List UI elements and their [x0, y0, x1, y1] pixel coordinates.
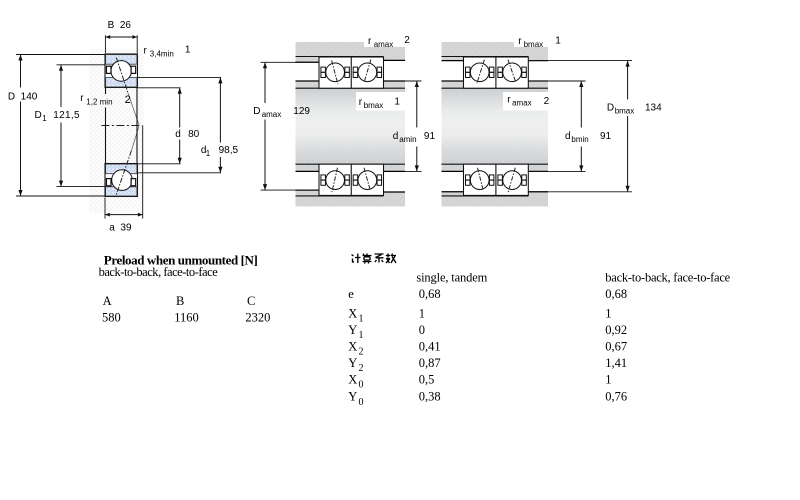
svg-text:2: 2: [404, 35, 410, 46]
svg-text:amax: amax: [262, 110, 282, 119]
svg-text:bmax: bmax: [615, 107, 635, 116]
svg-text:0,76: 0,76: [605, 390, 627, 404]
svg-text:C: C: [247, 294, 255, 308]
svg-text:80: 80: [188, 129, 200, 140]
svg-text:0,5: 0,5: [419, 372, 435, 386]
svg-text:91: 91: [600, 131, 612, 142]
svg-text:0: 0: [359, 380, 364, 391]
svg-text:134: 134: [645, 103, 662, 114]
svg-text:D: D: [35, 110, 42, 121]
svg-text:bmax: bmax: [524, 40, 544, 49]
svg-text:121,5: 121,5: [53, 110, 80, 121]
svg-text:bmin: bmin: [571, 135, 588, 144]
svg-text:0,92: 0,92: [605, 323, 627, 337]
svg-text:bmax: bmax: [364, 101, 384, 110]
svg-text:amin: amin: [399, 135, 416, 144]
svg-text:1160: 1160: [174, 311, 199, 325]
svg-text:2: 2: [125, 94, 131, 106]
svg-text:e: e: [348, 287, 354, 301]
svg-text:1: 1: [605, 372, 611, 386]
svg-text:0,68: 0,68: [605, 287, 627, 301]
svg-text:d: d: [175, 129, 181, 140]
svg-text:B 26: B 26: [108, 20, 132, 31]
svg-text:129: 129: [293, 106, 310, 117]
svg-text:back-to-back, face-to-face: back-to-back, face-to-face: [99, 265, 219, 279]
svg-text:98,5: 98,5: [219, 145, 239, 156]
svg-text:X: X: [348, 306, 357, 320]
svg-text:1: 1: [419, 306, 425, 320]
svg-text:0,87: 0,87: [419, 356, 441, 370]
svg-text:1,41: 1,41: [605, 356, 627, 370]
svg-text:0: 0: [419, 323, 425, 337]
svg-text:2: 2: [359, 363, 364, 374]
svg-text:Y: Y: [348, 356, 357, 370]
svg-text:d: d: [565, 131, 571, 142]
svg-text:1: 1: [359, 330, 364, 341]
svg-text:3,4min: 3,4min: [150, 49, 174, 58]
svg-text:X: X: [348, 372, 357, 386]
svg-text:0,41: 0,41: [419, 339, 441, 353]
svg-text:1: 1: [555, 36, 561, 47]
svg-text:D: D: [253, 106, 260, 117]
svg-text:single, tandem: single, tandem: [416, 271, 487, 285]
svg-text:a 39: a 39: [109, 223, 132, 234]
svg-text:1: 1: [359, 314, 364, 325]
svg-text:0,38: 0,38: [419, 390, 441, 404]
svg-text:back-to-back, face-to-face: back-to-back, face-to-face: [605, 271, 730, 285]
svg-text:0: 0: [359, 397, 364, 408]
svg-text:A: A: [103, 294, 112, 308]
svg-text:2: 2: [544, 96, 550, 107]
svg-text:1: 1: [605, 306, 611, 320]
svg-text:0,67: 0,67: [605, 339, 627, 353]
svg-text:1: 1: [206, 149, 211, 158]
svg-text:0,68: 0,68: [419, 287, 441, 301]
svg-text:1,2 min: 1,2 min: [86, 98, 112, 107]
svg-text:1: 1: [185, 45, 191, 56]
svg-text:Y: Y: [348, 323, 357, 337]
svg-text:Y: Y: [348, 390, 357, 404]
svg-text:D: D: [607, 103, 614, 114]
svg-text:D 140: D 140: [8, 92, 38, 103]
svg-text:amax: amax: [374, 40, 394, 49]
svg-text:d: d: [393, 131, 399, 142]
svg-text:1: 1: [42, 114, 47, 123]
svg-text:1: 1: [394, 96, 400, 107]
svg-text:2320: 2320: [245, 311, 270, 325]
svg-text:X: X: [348, 339, 357, 353]
svg-text:580: 580: [102, 311, 121, 325]
svg-text:B: B: [176, 294, 184, 308]
svg-text:amax: amax: [512, 99, 532, 108]
svg-text:91: 91: [424, 131, 436, 142]
svg-text:2: 2: [359, 347, 364, 358]
